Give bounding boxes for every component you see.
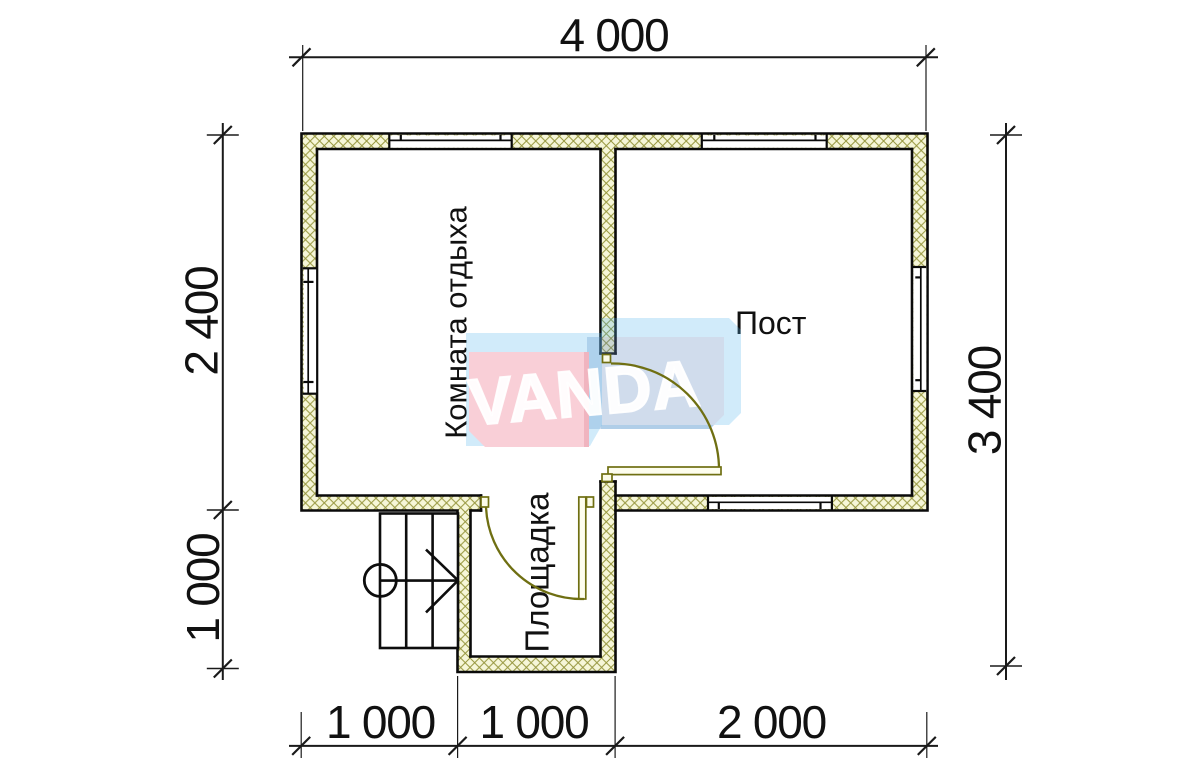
svg-text:Площадка: Площадка (519, 492, 556, 653)
svg-text:1 000: 1 000 (177, 533, 229, 642)
svg-text:2 000: 2 000 (717, 696, 826, 748)
svg-text:3 400: 3 400 (959, 346, 1011, 455)
svg-text:4 000: 4 000 (559, 9, 668, 61)
svg-text:1 000: 1 000 (326, 696, 435, 748)
svg-text:1 000: 1 000 (479, 696, 588, 748)
svg-text:Пост: Пост (735, 305, 807, 341)
svg-text:2 400: 2 400 (176, 266, 228, 375)
